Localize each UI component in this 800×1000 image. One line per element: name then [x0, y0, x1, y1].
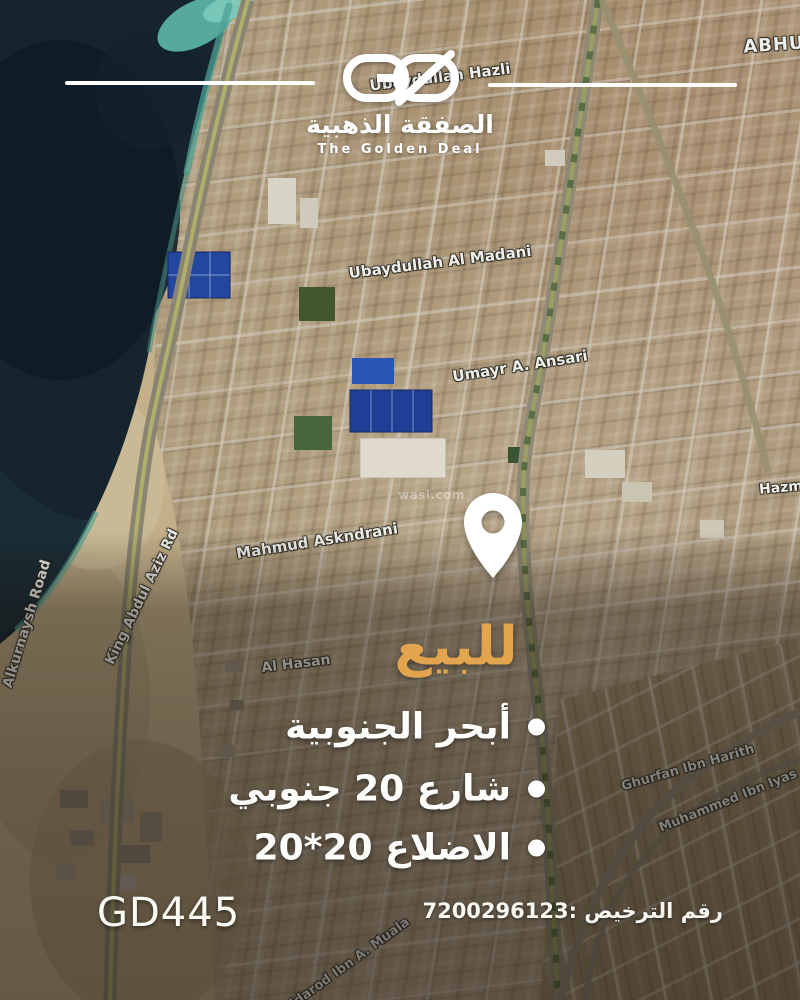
feature-text: شارع 20 جنوبي — [228, 769, 511, 810]
landmark-buildings — [168, 150, 724, 538]
brand-name-english: The Golden Deal — [0, 142, 800, 157]
map-watermark: wasl.com — [398, 488, 465, 502]
location-pin-icon — [460, 490, 526, 582]
feature-text: أبحر الجنوبية — [285, 707, 511, 748]
street-label-hazm: Hazm — [758, 478, 800, 498]
bullet-icon — [528, 840, 545, 857]
license-number: رقم الترخيص :7200296123 — [422, 899, 723, 923]
blue-panels — [168, 252, 432, 432]
gd-logo-icon — [325, 50, 475, 106]
feature-row-district: أبحر الجنوبية — [285, 707, 545, 748]
feature-row-dimensions: الاضلاع 20*20 — [254, 828, 545, 869]
listing-flyer: Ubaydullah Hazli ABHU Ubaydullah Al Mada… — [0, 0, 800, 1000]
bullet-icon — [528, 719, 545, 736]
feature-text: الاضلاع 20*20 — [254, 828, 511, 869]
brand-name-arabic: الصفقة الذهبية — [0, 112, 800, 137]
feature-row-street: شارع 20 جنوبي — [228, 769, 545, 810]
for-sale-label: للبيع — [394, 615, 517, 678]
reference-code: GD445 — [97, 890, 240, 936]
brand-block: الصفقة الذهبية The Golden Deal — [0, 50, 800, 157]
bullet-icon — [528, 781, 545, 798]
